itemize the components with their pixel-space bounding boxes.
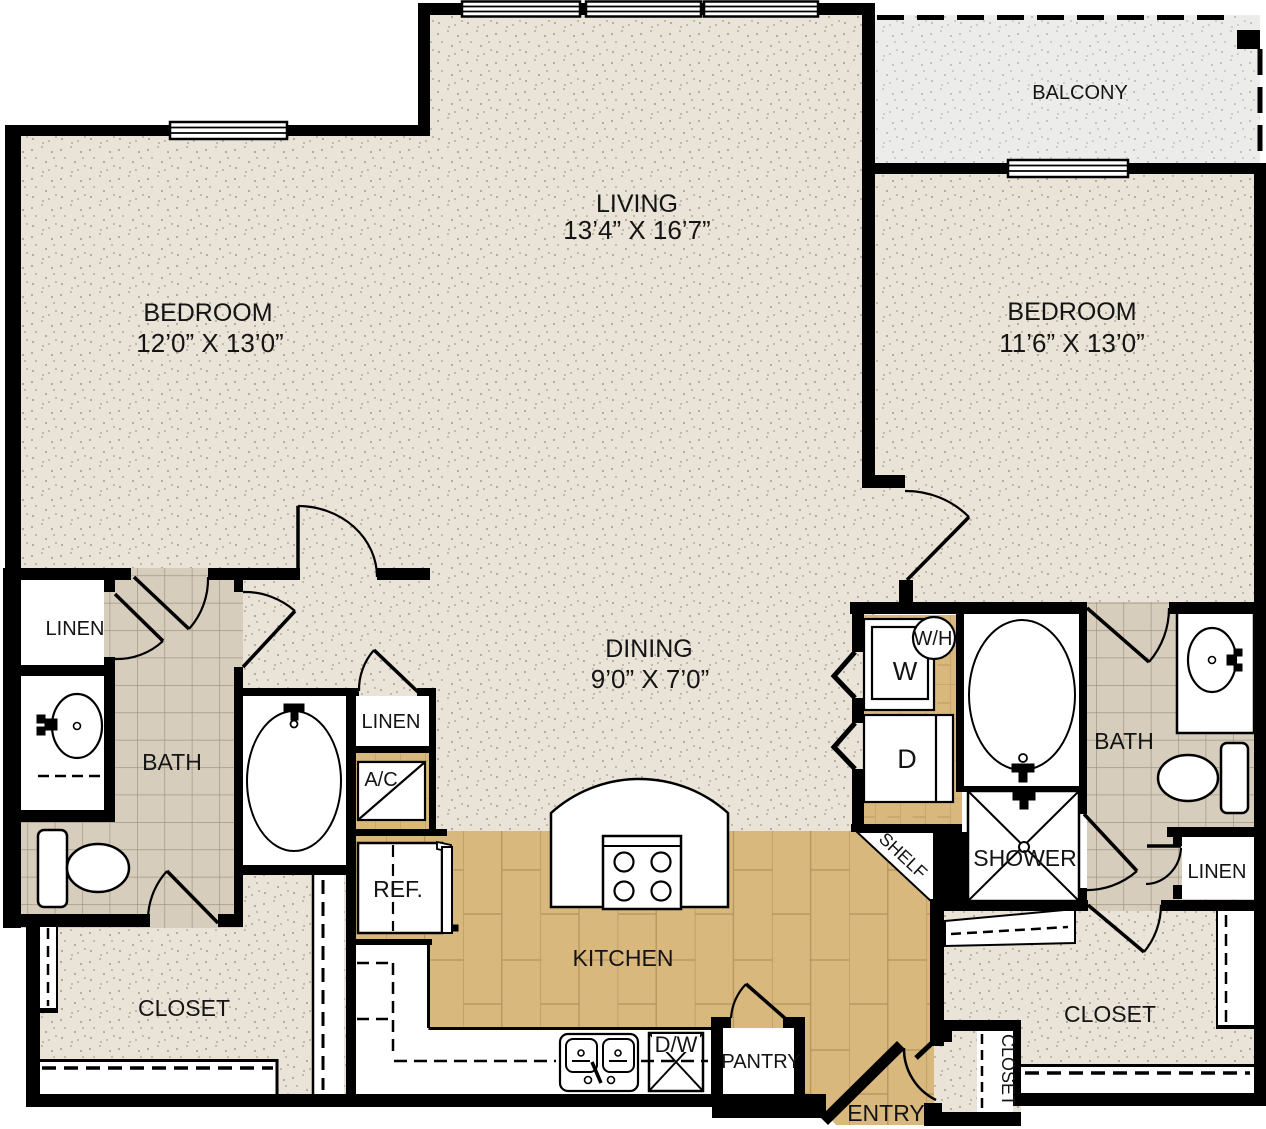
svg-text:12’0” X 13’0”: 12’0” X 13’0” — [136, 328, 283, 358]
svg-text:BALCONY: BALCONY — [1032, 82, 1128, 104]
svg-text:A/C: A/C — [364, 769, 397, 791]
svg-text:D/W: D/W — [655, 1032, 698, 1057]
svg-text:BEDROOM: BEDROOM — [1007, 298, 1136, 326]
svg-text:DINING: DINING — [605, 635, 693, 663]
svg-text:W: W — [893, 656, 918, 686]
svg-text:13’4” X 16’7”: 13’4” X 16’7” — [563, 215, 710, 245]
svg-text:BEDROOM: BEDROOM — [143, 299, 272, 327]
svg-text:W/H: W/H — [914, 628, 953, 650]
svg-text:REF.: REF. — [373, 876, 423, 902]
svg-text:LIVING: LIVING — [596, 190, 678, 218]
svg-text:ENTRY: ENTRY — [847, 1100, 925, 1126]
svg-text:CLOSET: CLOSET — [1064, 1001, 1156, 1027]
svg-text:9’0” X 7’0”: 9’0” X 7’0” — [591, 664, 710, 694]
svg-text:SHOWER: SHOWER — [973, 845, 1077, 871]
svg-text:CLOSET: CLOSET — [138, 995, 230, 1021]
svg-text:11’6” X 13’0”: 11’6” X 13’0” — [999, 328, 1145, 358]
svg-text:BATH: BATH — [1094, 728, 1154, 754]
svg-text:CLOSET: CLOSET — [998, 1034, 1018, 1106]
svg-text:D: D — [897, 744, 917, 774]
svg-text:BATH: BATH — [142, 749, 202, 775]
svg-text:LINEN: LINEN — [362, 711, 421, 733]
svg-text:KITCHEN: KITCHEN — [573, 945, 674, 971]
svg-text:LINEN: LINEN — [1188, 861, 1247, 883]
svg-text:PANTRY: PANTRY — [721, 1051, 800, 1073]
svg-text:LINEN: LINEN — [46, 618, 105, 640]
